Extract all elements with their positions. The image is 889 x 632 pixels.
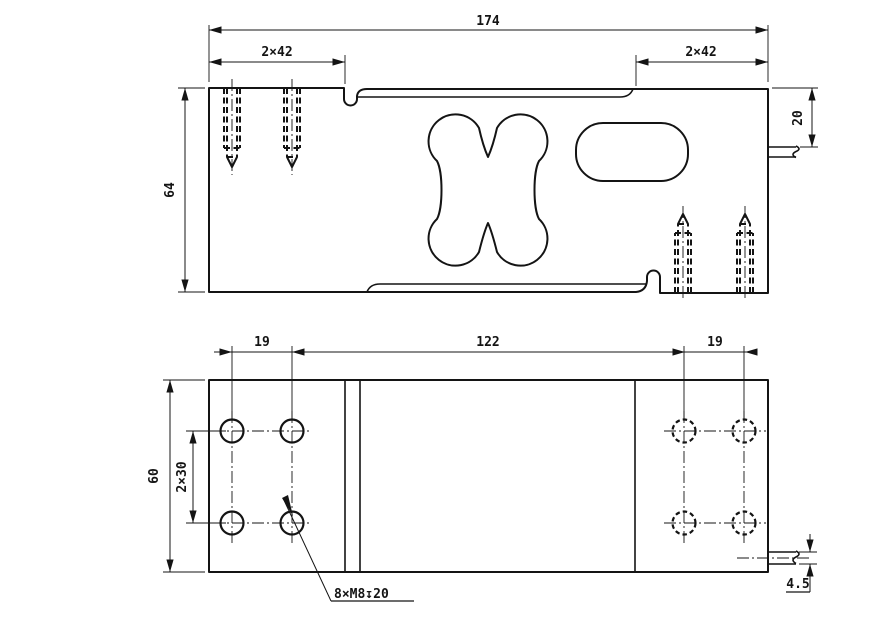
- dim-label-height: 64: [163, 182, 178, 198]
- cable-side-view: [768, 146, 799, 158]
- mounting-holes-right: [664, 411, 766, 543]
- technical-drawing: 174 2×42 2×42 64 20: [0, 0, 889, 632]
- dim-label-center-distance: 122: [476, 335, 499, 350]
- threaded-hole-top-right-1: [675, 206, 691, 301]
- drawing-page: 174 2×42 2×42 64 20: [0, 0, 889, 632]
- dim-label-right-spacing: 2×42: [685, 45, 716, 60]
- dim-label-row-pitch: 2×30: [175, 461, 190, 492]
- bottom-view: 19 122 19 60 2×30 8×M8↧20 4.5: [147, 335, 817, 602]
- thread-callout-label: 8×M8↧20: [334, 587, 389, 602]
- top-view: 174 2×42 2×42 64 20: [163, 14, 818, 301]
- dim-label-left-spacing: 2×42: [261, 45, 292, 60]
- threaded-hole-top-right-2: [737, 206, 753, 301]
- dim-label-width: 60: [147, 468, 162, 484]
- leader-line: [283, 498, 331, 601]
- bottom-recess-line: [367, 284, 646, 292]
- plan-step-lines: [345, 380, 635, 572]
- body-outline: [209, 88, 768, 293]
- threaded-hole-top-left-2: [284, 79, 300, 175]
- dim-label-cable-dia: 4.5: [786, 577, 809, 592]
- clover-cutout: [429, 114, 548, 265]
- dim-label-total-length: 174: [476, 14, 500, 29]
- threaded-hole-top-left-1: [224, 79, 240, 175]
- dim-label-cable-offset: 20: [791, 110, 806, 126]
- top-recess-line: [357, 89, 633, 97]
- oval-cutout: [576, 123, 688, 181]
- cable-plan-view: [737, 551, 812, 564]
- cable-dia-dim: 4.5: [786, 534, 810, 592]
- dim-label-left-pitch: 19: [254, 335, 270, 350]
- thread-callout: 8×M8↧20: [282, 495, 414, 602]
- dim-label-right-pitch: 19: [707, 335, 723, 350]
- mounting-holes-left: [212, 411, 312, 543]
